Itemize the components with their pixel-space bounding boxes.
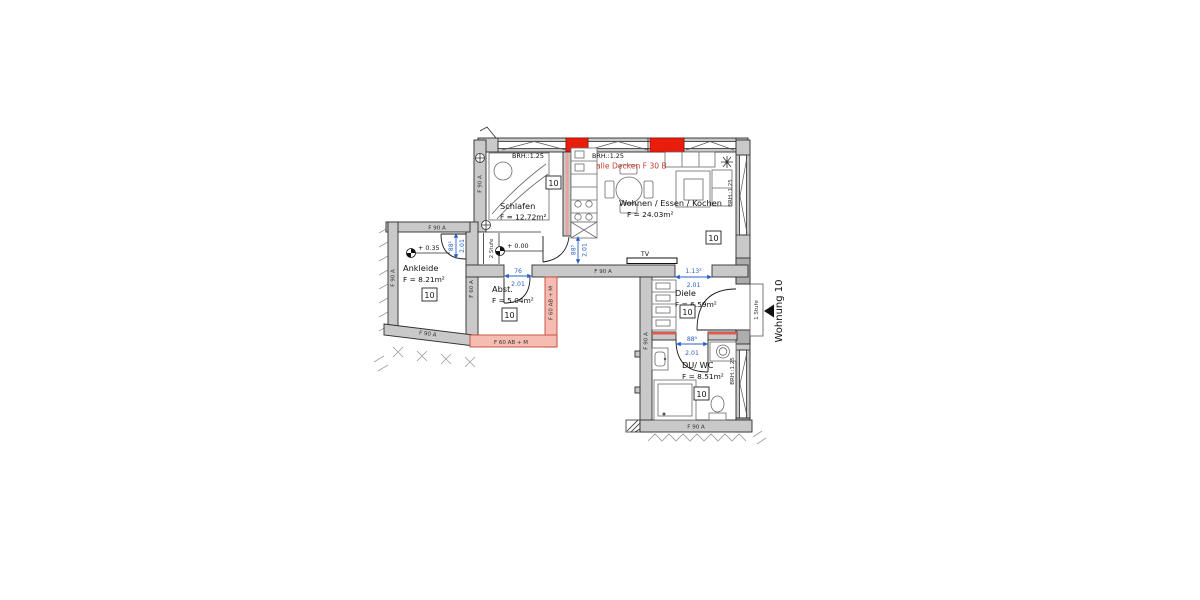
plant-icon	[721, 156, 733, 168]
tv-unit	[627, 258, 677, 264]
wardrobe	[652, 280, 676, 330]
room-area-ankleide: F = 8.21m²	[403, 275, 445, 284]
brh-label: BRH.:1.25	[592, 152, 624, 160]
wall-rating: F 90 A	[644, 332, 650, 350]
steps-label: 2 Stufe	[489, 238, 495, 258]
tv-label: TV	[640, 250, 650, 258]
unit-number: 10	[708, 234, 718, 243]
room-area-schlafen: F = 12.72m²	[500, 213, 546, 222]
floor-plan: 88¹ 2.01 76 2.01 88⁵ 2.01 1.13³ 2.01 88⁵…	[0, 0, 1200, 600]
shower	[654, 380, 696, 420]
steps-label: 1 Stufe	[754, 300, 760, 320]
unit-number: 10	[504, 311, 514, 320]
unit-number: 10	[696, 390, 706, 399]
entrance-arrow-icon	[764, 305, 774, 318]
level-value: + 0.00	[507, 242, 529, 250]
unit-number: 10	[424, 291, 434, 300]
wall-rating: F 60 AB + M	[549, 286, 555, 320]
wall-rating: F 90 A	[594, 269, 612, 275]
mid-wall-right	[712, 265, 748, 277]
wall-rating: F 90 A	[687, 425, 705, 431]
room-area-duwc: F = 8.51m²	[682, 372, 724, 381]
unit-number: 10	[682, 308, 692, 317]
wall-rating: F 90 A	[478, 175, 484, 193]
kitchen-door	[543, 236, 569, 262]
dim-text: 2.01	[582, 243, 589, 257]
dim-text: 1.13³	[685, 268, 702, 275]
level-value: + 0.35	[418, 244, 440, 252]
room-name-schlafen: Schlafen	[500, 201, 535, 211]
dim-text: 88⁵	[687, 336, 698, 343]
fire-wall-segment	[650, 138, 684, 152]
room-area-wohnen: F = 24.03m²	[627, 210, 673, 219]
mid-wall-left	[466, 265, 504, 277]
room-name-abst: Abst.	[492, 284, 513, 294]
apartment-label: Wohnung 10	[774, 279, 785, 342]
wall-rating: F 90 A	[391, 269, 397, 287]
duwc-left-wall	[640, 277, 652, 432]
room-name-duwc: DU/ WC	[682, 360, 714, 370]
dim-text: 88¹	[448, 240, 455, 251]
brh-label: BRH.:1.25	[512, 152, 544, 160]
brh-label: BRH.:1.25	[728, 179, 734, 207]
brh-label: BRH.:1.25	[730, 357, 736, 385]
ceiling-note: alle Decken F 30 B	[596, 162, 667, 171]
dim-text: 2.01	[511, 281, 525, 288]
room-name-wohnen: Wohnen / Essen / Kochen	[619, 198, 722, 208]
dim-text: 76	[514, 268, 522, 275]
toilet	[709, 413, 726, 420]
dim-text: 2.01	[685, 350, 699, 357]
wall-rating: F 60 AB + M	[494, 340, 528, 346]
room-area-abst: F = 5.04m²	[492, 296, 534, 305]
kitchen-units	[571, 148, 597, 238]
room-name-ankleide: Ankleide	[403, 263, 438, 273]
dim-text: 2.01	[459, 239, 466, 253]
wall-rating: F 90 A	[428, 226, 446, 232]
entrance-door	[697, 289, 736, 330]
wall-rating: F 60 A	[469, 280, 475, 298]
room-name-diele: Diele	[675, 288, 696, 298]
dim-text: 88⁵	[571, 244, 578, 255]
unit-number: 10	[548, 179, 558, 188]
